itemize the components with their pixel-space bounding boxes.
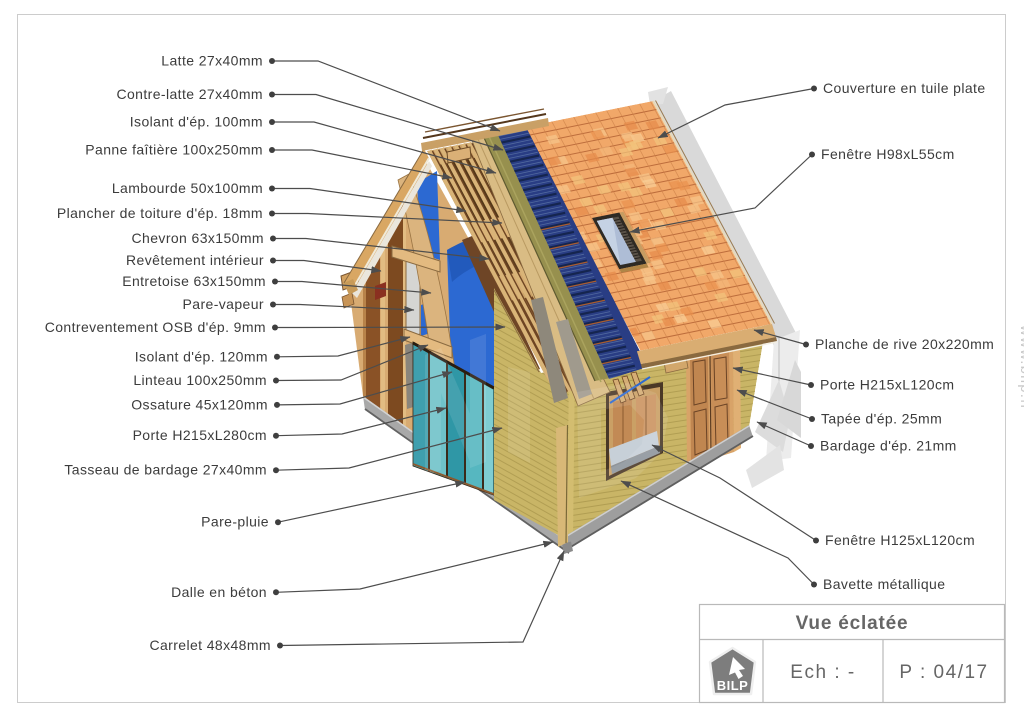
svg-text:Tasseau de bardage 27x40mm: Tasseau de bardage 27x40mm bbox=[64, 462, 267, 478]
svg-text:Carrelet 48x48mm: Carrelet 48x48mm bbox=[149, 637, 271, 653]
svg-text:Fenêtre H125xL120cm: Fenêtre H125xL120cm bbox=[825, 532, 975, 548]
svg-text:Contre-latte 27x40mm: Contre-latte 27x40mm bbox=[116, 86, 263, 102]
svg-text:Vue éclatée: Vue éclatée bbox=[796, 613, 909, 634]
svg-text:Chevron 63x150mm: Chevron 63x150mm bbox=[132, 230, 264, 246]
svg-text:www.bilp.fr: www.bilp.fr bbox=[1017, 324, 1024, 411]
svg-text:Isolant d'ép. 100mm: Isolant d'ép. 100mm bbox=[130, 114, 263, 130]
svg-text:Tapée d'ép. 25mm: Tapée d'ép. 25mm bbox=[821, 411, 942, 427]
svg-text:Planche de rive 20x220mm: Planche de rive 20x220mm bbox=[815, 336, 994, 352]
svg-text:Dalle en béton: Dalle en béton bbox=[171, 584, 267, 600]
svg-text:Fenêtre H98xL55cm: Fenêtre H98xL55cm bbox=[821, 146, 955, 162]
svg-text:Panne faîtière 100x250mm: Panne faîtière 100x250mm bbox=[85, 142, 263, 158]
svg-text:Bavette métallique: Bavette métallique bbox=[823, 576, 945, 592]
svg-text:Ech : -: Ech : - bbox=[790, 662, 855, 683]
svg-text:Latte 27x40mm: Latte 27x40mm bbox=[161, 53, 263, 69]
svg-text:Ossature 45x120mm: Ossature 45x120mm bbox=[131, 396, 268, 412]
svg-text:Couverture en tuile plate: Couverture en tuile plate bbox=[823, 80, 986, 96]
svg-text:Revêtement intérieur: Revêtement intérieur bbox=[126, 252, 264, 268]
svg-text:P : 04/17: P : 04/17 bbox=[899, 662, 988, 683]
svg-text:Lambourde 50x100mm: Lambourde 50x100mm bbox=[112, 180, 263, 196]
svg-text:Plancher de toiture d'ép. 18mm: Plancher de toiture d'ép. 18mm bbox=[57, 205, 263, 221]
svg-text:Porte H215xL120cm: Porte H215xL120cm bbox=[820, 377, 954, 393]
svg-text:Entretoise 63x150mm: Entretoise 63x150mm bbox=[122, 273, 266, 289]
svg-text:Pare-pluie: Pare-pluie bbox=[201, 514, 269, 530]
svg-text:BILP: BILP bbox=[717, 678, 749, 693]
svg-text:Contreventement OSB d'ép. 9mm: Contreventement OSB d'ép. 9mm bbox=[45, 319, 266, 335]
svg-text:Linteau 100x250mm: Linteau 100x250mm bbox=[133, 372, 267, 388]
svg-text:Porte H215xL280cm: Porte H215xL280cm bbox=[133, 427, 267, 443]
svg-text:Pare-vapeur: Pare-vapeur bbox=[183, 296, 264, 312]
svg-text:Isolant d'ép. 120mm: Isolant d'ép. 120mm bbox=[135, 348, 268, 364]
svg-text:Bardage d'ép. 21mm: Bardage d'ép. 21mm bbox=[820, 438, 957, 454]
